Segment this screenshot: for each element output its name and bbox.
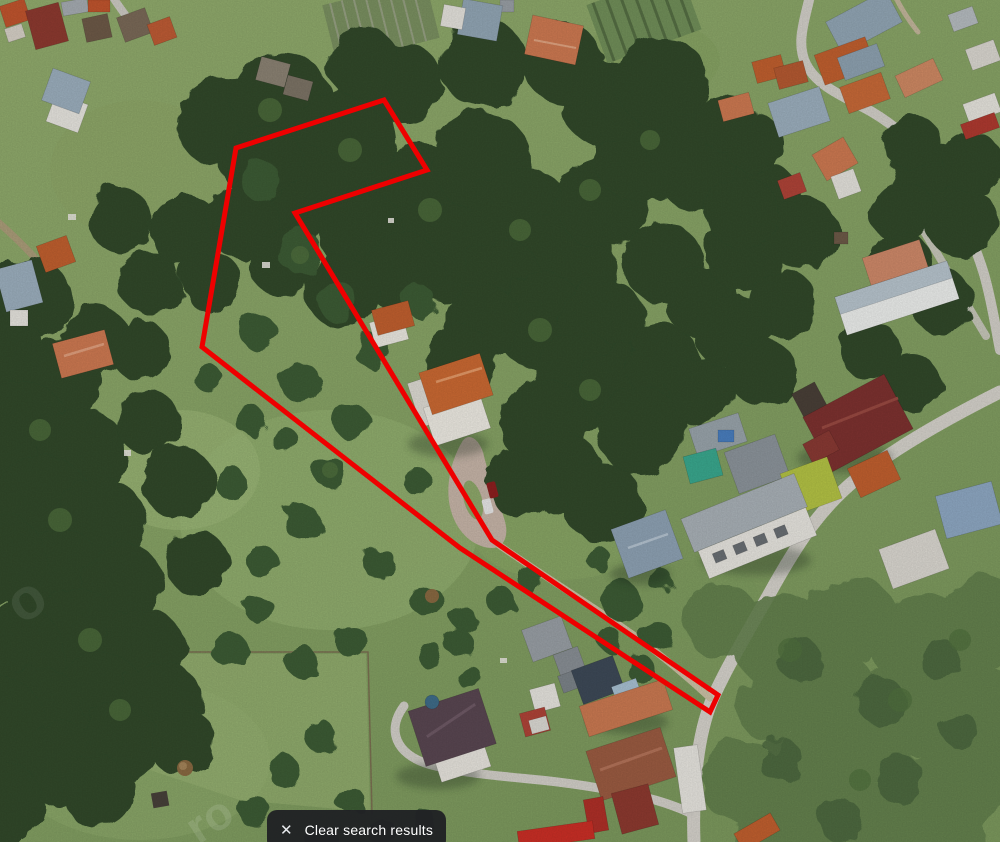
property-boundary-polygon [202,100,718,712]
search-result-overlay [0,0,1000,842]
clear-search-results-label: Clear search results [305,822,434,838]
close-icon: ✕ [280,823,293,838]
map-viewport[interactable]: ro o ✕ Clear search results [0,0,1000,842]
clear-search-results-button[interactable]: ✕ Clear search results [267,810,446,842]
